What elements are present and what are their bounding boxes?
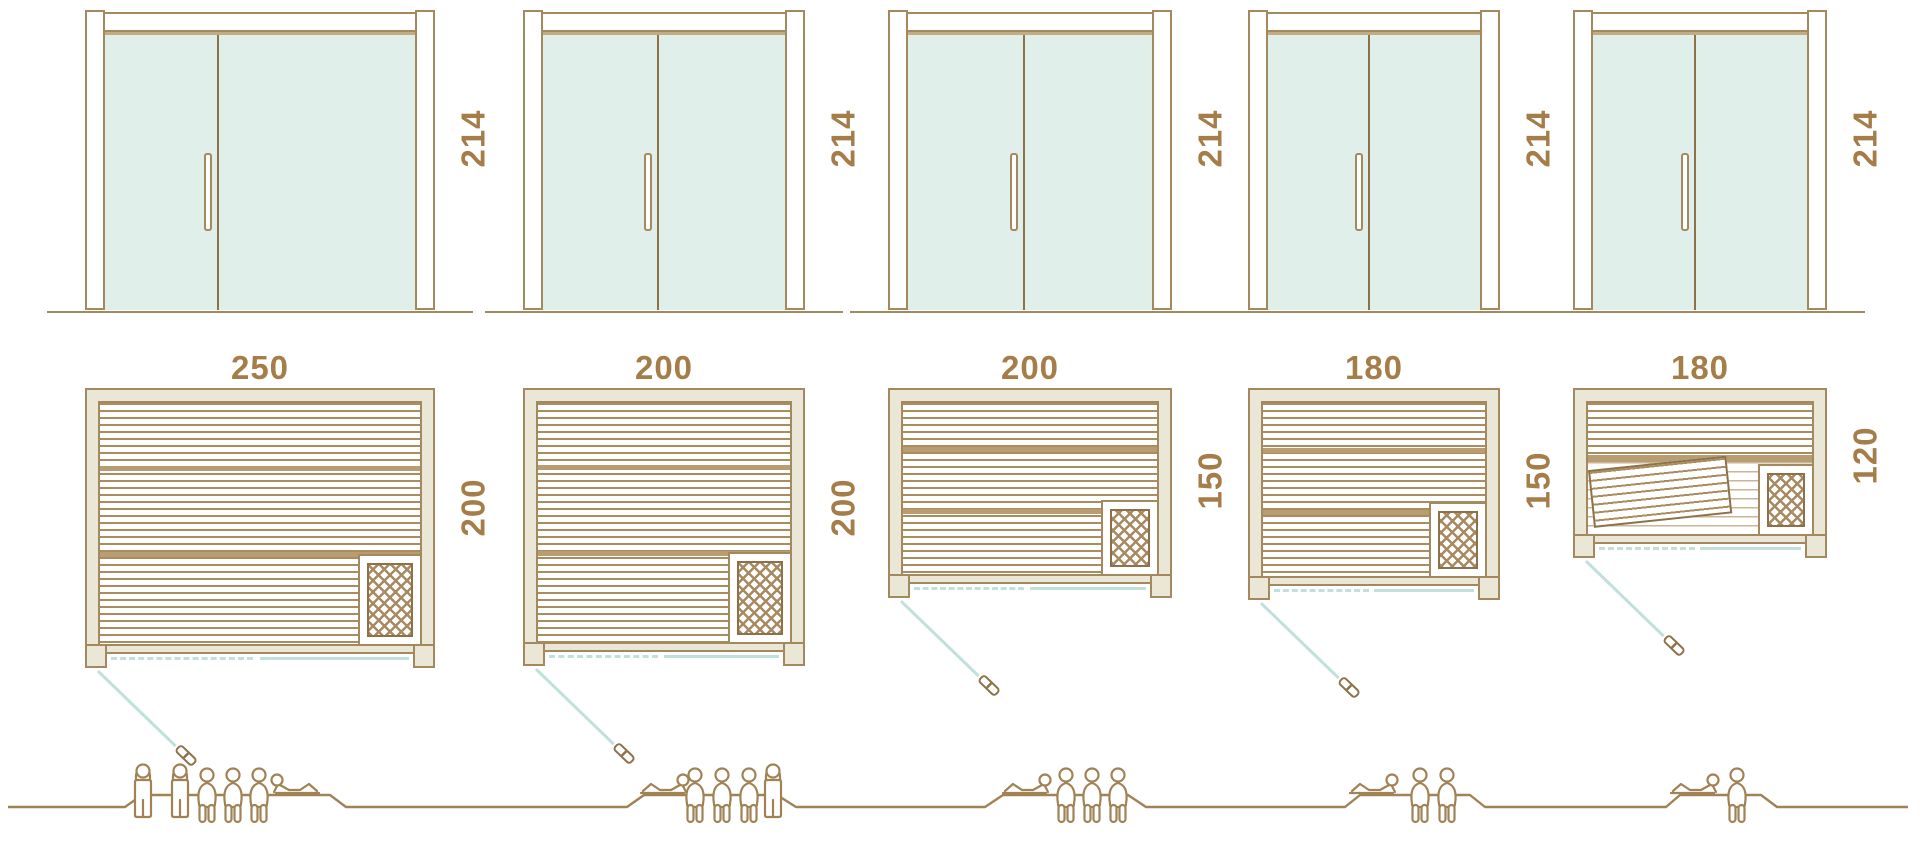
bench-edge [1263,448,1485,453]
door-height-dimension: 214 [1192,89,1229,189]
door-frame-post-left [85,10,105,310]
floor-plan [1248,388,1500,600]
plan-benches [536,401,792,644]
heater-icon [367,563,413,637]
plan-post-left [888,574,910,598]
bench-edge [903,447,1157,452]
door-lintel [103,12,417,32]
heater-area [1429,502,1487,578]
plan-post-right [1150,574,1172,598]
door-panel-divider [1368,35,1370,310]
heater-area [1758,464,1814,536]
sauna-module-180x120: 214 180 120 [1573,0,1827,843]
ground-line [1535,311,1865,313]
plan-benches [98,401,422,646]
plan-width-dimension: 200 [888,349,1172,386]
door-lintel [906,12,1154,32]
heater-icon [1110,509,1150,567]
door-panel-divider [657,35,659,310]
person-seated-icon [686,769,703,823]
ground-profile-line [8,795,1908,807]
plan-post-right [783,642,805,666]
plan-benches [901,401,1159,576]
sauna-module-200x200: 214 200 200 [523,0,805,843]
door-panel-divider [1023,35,1025,310]
ground-line [1210,311,1538,313]
door-frame-post-left [888,10,908,310]
door-elevation [85,10,435,310]
sauna-module-180x150: 214 180 150 [1248,0,1500,843]
person-seated-icon [740,769,757,823]
plan-depth-dimension: 200 [825,458,862,558]
plan-width-dimension: 180 [1248,349,1500,386]
floor-plan [85,388,435,668]
door-handle-icon [1681,153,1689,231]
person-seated-icon [224,769,241,823]
door-frame-post-right [1480,10,1500,310]
door-height-dimension: 214 [1847,89,1884,189]
person-standing-icon [765,765,781,818]
person-standing-icon [135,765,151,818]
sauna-module-250x200: 214 250 200 [85,0,435,843]
door-opening-dashed-line [1274,589,1369,592]
glass-front [1593,32,1807,310]
door-lintel [1591,12,1809,32]
person-seated-icon [1109,769,1126,823]
door-frame-post-left [1248,10,1268,310]
floor-plan [1573,388,1827,558]
person-seated-icon [1411,769,1428,823]
person-reclining-icon [1350,775,1398,794]
door-panel-divider [1694,35,1696,310]
plan-depth-dimension: 150 [1520,431,1557,531]
door-height-dimension: 214 [825,89,862,189]
plan-depth-dimension: 150 [1192,431,1229,531]
plan-post-left [1573,534,1595,558]
door-opening-dashed-line [914,587,1024,590]
ground-line [485,311,843,313]
door-elevation [1248,10,1500,310]
front-glass-line [260,657,409,660]
glass-front [543,32,785,310]
floor-plan [888,388,1172,598]
heater-area [1101,500,1159,576]
door-panel-divider [217,35,219,310]
door-frame-post-left [523,10,543,310]
plan-post-left [523,642,545,666]
door-swing-line [900,600,979,677]
plan-post-right [1805,534,1827,558]
door-handle-icon [204,153,212,231]
glass-front [908,32,1152,310]
person-seated-icon [250,769,267,823]
door-lintel [1266,12,1482,32]
capacity-figures-strip [0,735,1920,843]
door-frame-post-left [1573,10,1593,310]
person-seated-icon [1083,769,1100,823]
door-elevation [1573,10,1827,310]
front-glass-line [1374,589,1474,592]
plan-post-left [1248,576,1270,600]
person-reclining-icon [641,775,689,794]
sauna-size-comparison-diagram: 214 250 200 [0,0,1920,843]
person-reclining-icon [1671,775,1719,794]
heater-icon [737,561,783,635]
front-glass-line [1030,587,1146,590]
door-handle-icon [1355,153,1363,231]
floor-plan [523,388,805,666]
door-handle-icon [644,153,652,231]
door-opening-dashed-line [111,657,253,660]
person-seated-icon [1057,769,1074,823]
sauna-module-200x150: 214 200 150 [888,0,1172,843]
plan-depth-dimension: 120 [1847,406,1884,506]
person-seated-icon [198,769,215,823]
door-frame-post-right [1807,10,1827,310]
plan-width-dimension: 180 [1573,349,1827,386]
door-lintel [541,12,787,32]
plan-benches [1586,401,1814,536]
glass-front [105,32,415,310]
plan-post-right [1478,576,1500,600]
ground-line [850,311,1210,313]
person-seated-icon [1438,769,1455,823]
upper-bench [1588,403,1812,455]
door-frame-post-right [785,10,805,310]
glass-front [1268,32,1480,310]
heater-area [358,554,422,646]
person-standing-icon [172,765,188,818]
plan-post-left [85,644,107,668]
angled-bench [1588,456,1732,528]
person-seated-icon [1728,769,1745,823]
ground-line [47,311,473,313]
door-swing-line [1260,602,1339,679]
door-height-dimension: 214 [1520,89,1557,189]
person-reclining-icon [1003,775,1051,794]
front-glass-line [664,655,779,658]
door-frame-post-right [1152,10,1172,310]
plan-depth-dimension: 200 [455,458,492,558]
plan-width-dimension: 250 [85,349,435,386]
door-elevation [523,10,805,310]
bench-edge [538,465,790,470]
door-frame-post-right [415,10,435,310]
door-swing-line [535,668,614,745]
door-elevation [888,10,1172,310]
front-glass-line [1700,547,1801,550]
door-height-dimension: 214 [455,89,492,189]
heater-icon [1438,511,1478,569]
bench-edge [100,466,420,471]
heater-area [728,552,792,644]
plan-post-right [413,644,435,668]
door-opening-dashed-line [1599,547,1695,550]
plan-benches [1261,401,1487,578]
person-reclining-icon [272,775,320,794]
person-seated-icon [713,769,730,823]
plan-width-dimension: 200 [523,349,805,386]
door-opening-dashed-line [549,655,658,658]
heater-icon [1767,473,1805,527]
door-handle-icon [1010,153,1018,231]
door-swing-line [1585,560,1664,637]
